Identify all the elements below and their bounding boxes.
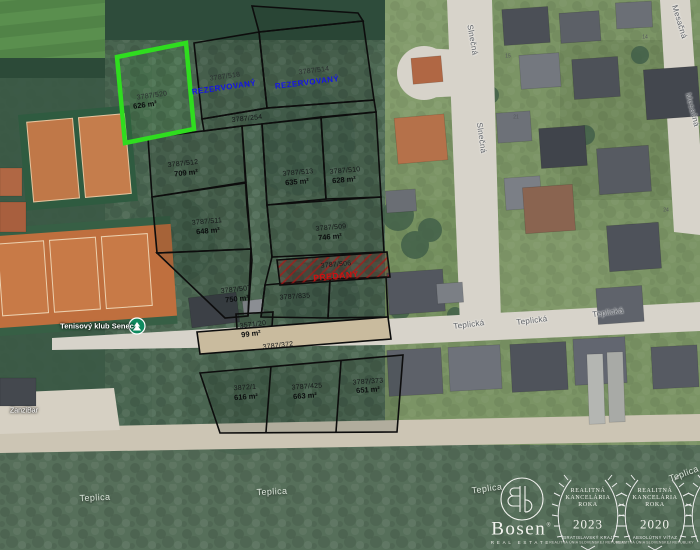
registered-mark: ® — [546, 523, 551, 529]
parcel-label-3787-254: 3787/254 — [231, 114, 262, 124]
parcel-area-3787-425: 663 m² — [293, 391, 317, 400]
award-2020-footnote: REALITNÁ ÚNIA SLOVENSKEJ REPUBLIKY — [616, 541, 694, 545]
award-2023-line2: KANCELÁRIA — [566, 495, 611, 501]
parcel-area-3787-513: 635 m² — [285, 177, 309, 187]
map-labels: 3787/520 626 m² 3787/518 REZERVOVANÝ 378… — [0, 0, 700, 550]
house-number: 14 — [642, 36, 648, 41]
parcel-area-3787-511: 648 m² — [196, 226, 220, 236]
parcel-area-3787-510: 628 m² — [332, 175, 356, 185]
brand-name-text: Bosen — [491, 519, 546, 540]
award-2020-year: 2020 — [640, 518, 670, 531]
award-2020-line3: ROKA — [645, 502, 664, 508]
street-label-teplicka-1: Teplická — [453, 319, 485, 331]
brand-tagline: REAL ESTATE — [491, 541, 551, 546]
street-label-teplicka-2: Teplická — [516, 315, 548, 327]
house-number: 21 — [513, 116, 519, 121]
parcel-label-3787-835: 3787/835 — [279, 292, 310, 301]
street-label-mesacna-2: Mesačná — [684, 92, 700, 127]
parcel-area-3787-509: 746 m² — [318, 232, 342, 242]
brand-wordmark: Bosen® — [491, 520, 551, 539]
street-label-slnecna-1: Slnečná — [465, 24, 478, 56]
award-2023-year: 2023 — [573, 518, 603, 531]
parcel-area-3872-1: 616 m² — [234, 392, 258, 401]
street-label-teplicka-3: Teplická — [592, 307, 624, 319]
award-2023-footnote: REALITNÁ ÚNIA SLOVENSKEJ REPUBLIKY — [549, 541, 627, 545]
house-number: 15 — [505, 55, 511, 60]
award-2023-line1: REALITNÁ — [571, 488, 606, 494]
stream-label-teplica-1: Teplica — [79, 493, 110, 504]
street-label-mesacna-1: Mesačná — [670, 4, 688, 39]
award-2023-line3: ROKA — [578, 502, 597, 508]
street-label-slnecna-2: Slnečná — [475, 122, 487, 154]
satellite-parcel-map: 3787/520 626 m² 3787/518 REZERVOVANÝ 378… — [0, 0, 700, 550]
parcel-area-3787-520: 626 m² — [133, 100, 158, 111]
house-number: 24 — [663, 209, 669, 214]
parcel-status-3787-514: REZERVOVANÝ — [274, 75, 339, 91]
poi-label-zanzibar: ZanziBar — [10, 408, 38, 415]
stream-label-teplica-3: Teplica — [471, 482, 503, 495]
stream-label-teplica-2: Teplica — [256, 487, 287, 498]
parcel-status-3787-518: REZERVOVANÝ — [191, 80, 256, 97]
parcel-label-3787-372: 3787/372 — [262, 341, 293, 351]
parcel-area-3787-507: 750 m² — [225, 294, 249, 304]
stream-label-teplica-4: Teplica — [668, 464, 700, 483]
award-2020-line1: REALITNÁ — [638, 488, 673, 494]
parcel-area-3787-373: 651 m² — [356, 385, 380, 394]
parcel-label-3787-506: 3787/506 — [320, 260, 351, 270]
poi-label-tennis-club: Tenisový klub Senec — [60, 322, 134, 330]
award-2020-line2: KANCELÁRIA — [633, 495, 678, 501]
parcel-area-3571-20: 99 m² — [241, 329, 261, 339]
parcel-area-3787-512: 709 m² — [174, 168, 198, 178]
parcel-status-3787-506: PREDANÝ — [313, 270, 359, 282]
